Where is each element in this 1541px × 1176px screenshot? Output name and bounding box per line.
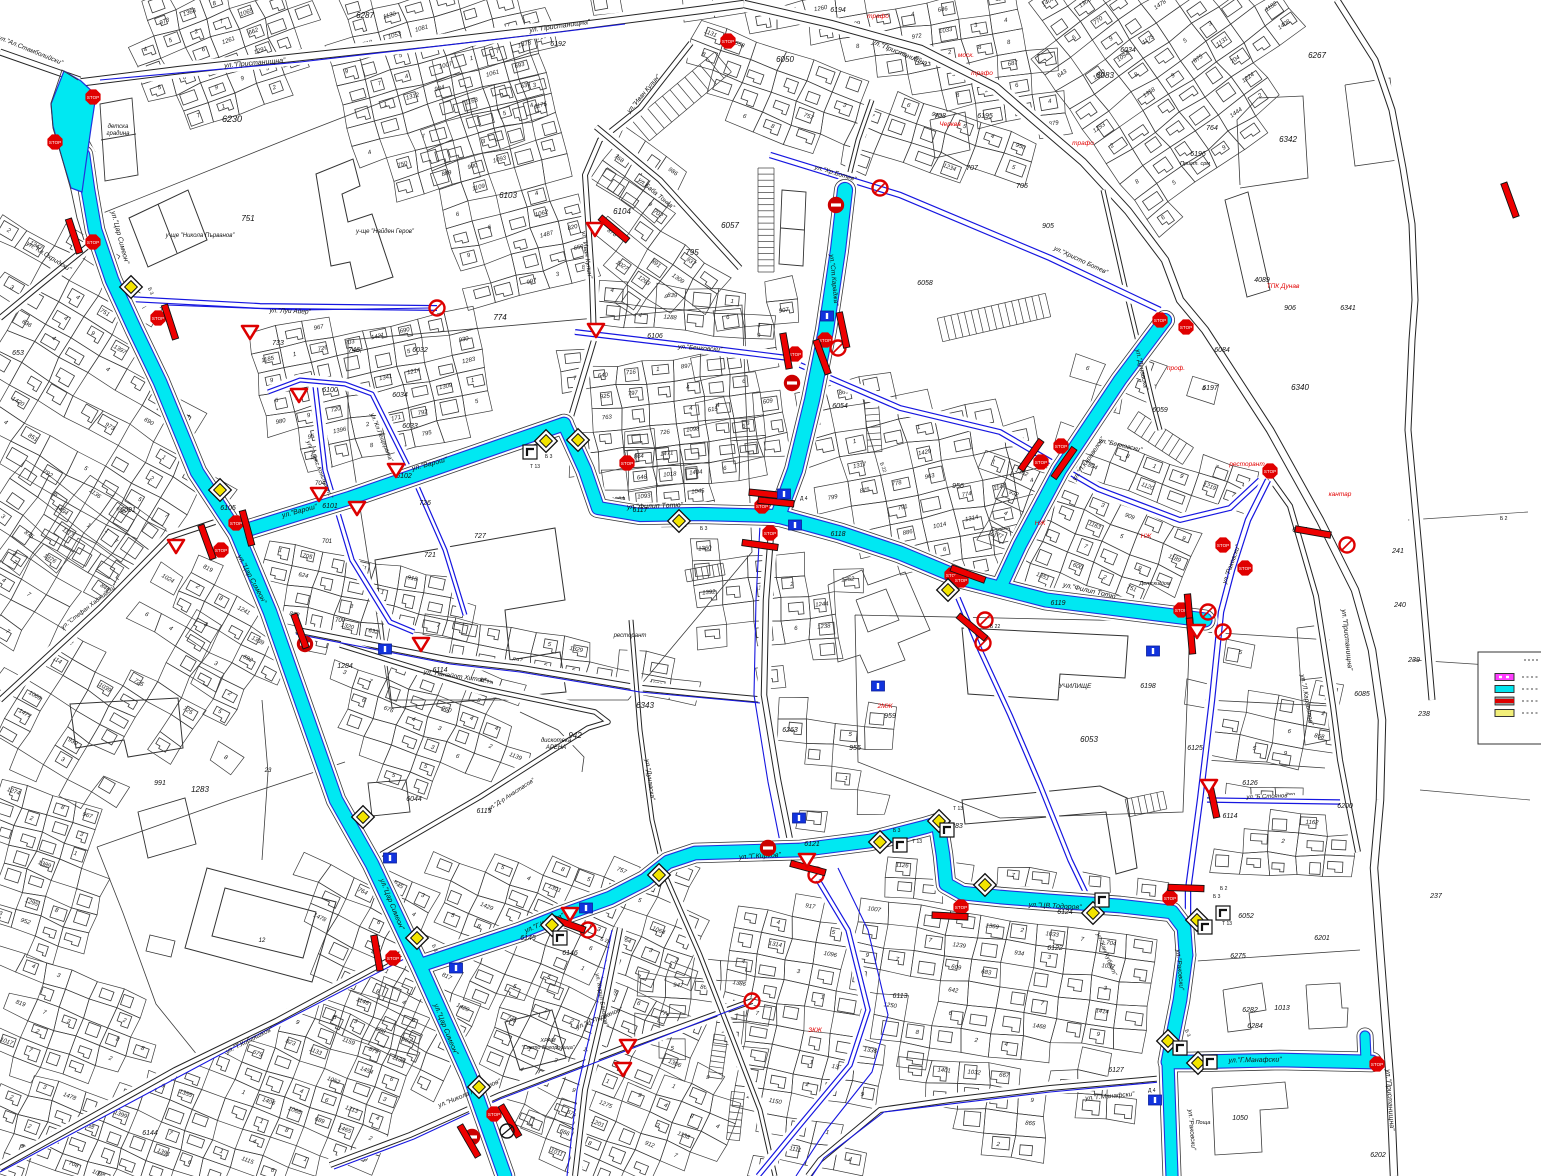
svg-text:991: 991: [154, 780, 166, 787]
svg-text:6044: 6044: [406, 796, 422, 803]
svg-text:1283: 1283: [191, 785, 209, 794]
svg-text:STOP: STOP: [955, 905, 967, 910]
svg-text:Б 3: Б 3: [545, 454, 553, 460]
svg-text:Д 4: Д 4: [800, 496, 808, 502]
svg-text:774: 774: [493, 313, 507, 322]
svg-text:763: 763: [602, 414, 613, 421]
svg-text:1050: 1050: [1232, 1115, 1248, 1122]
svg-text:6122: 6122: [1047, 945, 1063, 952]
svg-text:STOP: STOP: [621, 461, 633, 466]
svg-text:6101: 6101: [322, 503, 338, 510]
svg-text:ул.”Г.Манафски”: ул.”Г.Манафски”: [1227, 1057, 1282, 1065]
svg-text:6118: 6118: [830, 531, 845, 538]
svg-text:707: 707: [966, 165, 979, 172]
svg-text:6202: 6202: [1370, 1152, 1386, 1159]
svg-text:6085: 6085: [1354, 691, 1370, 698]
svg-text:1: 1: [656, 367, 660, 373]
svg-text:градина: градина: [107, 131, 131, 137]
svg-text:STOP: STOP: [230, 521, 242, 526]
svg-text:764: 764: [1206, 125, 1218, 132]
svg-text:905: 905: [1042, 223, 1054, 230]
svg-text:НЖ: НЖ: [1035, 520, 1047, 527]
svg-text:1288: 1288: [663, 314, 677, 321]
svg-text:640: 640: [598, 372, 609, 379]
svg-text:727: 727: [474, 533, 487, 540]
svg-text:751: 751: [241, 214, 254, 223]
svg-text:716: 716: [626, 369, 637, 376]
svg-text:6058: 6058: [917, 280, 933, 287]
svg-text:865: 865: [1025, 1121, 1036, 1128]
svg-text:1252: 1252: [841, 576, 855, 583]
svg-text:6144: 6144: [142, 1130, 158, 1137]
svg-text:6054: 6054: [832, 403, 848, 410]
svg-text:1244: 1244: [815, 601, 829, 608]
svg-text:STOP: STOP: [87, 240, 99, 245]
svg-text:ресторант: ресторант: [613, 633, 647, 639]
svg-text:646: 646: [637, 474, 648, 481]
svg-text:моск.: моск.: [958, 52, 974, 59]
svg-text:STOP: STOP: [152, 316, 164, 321]
svg-text:STOP: STOP: [1264, 469, 1276, 474]
svg-text:ХРАМ: ХРАМ: [539, 1038, 556, 1044]
svg-text:241: 241: [1391, 548, 1404, 555]
svg-text:956: 956: [952, 483, 964, 490]
svg-text:Т 13: Т 13: [953, 806, 963, 812]
svg-text:897: 897: [681, 363, 692, 370]
svg-text:6146: 6146: [562, 950, 578, 957]
svg-text:6275: 6275: [1230, 953, 1246, 960]
svg-text:STOP: STOP: [1164, 896, 1176, 901]
svg-text:Б 3: Б 3: [893, 828, 901, 834]
svg-text:925: 925: [600, 393, 611, 400]
svg-text:STOP: STOP: [1217, 543, 1229, 548]
svg-text:трафо: трафо: [867, 13, 889, 20]
svg-text:6124: 6124: [1057, 909, 1073, 916]
svg-text:6282: 6282: [1242, 1007, 1258, 1014]
svg-text:6196: 6196: [1190, 151, 1206, 158]
svg-text:6342: 6342: [1279, 135, 1297, 144]
svg-text:STOP: STOP: [1371, 1062, 1383, 1067]
svg-text:6121: 6121: [804, 841, 820, 848]
svg-text:6103: 6103: [499, 191, 517, 200]
svg-text:6104: 6104: [613, 207, 631, 216]
svg-text:239: 239: [1407, 657, 1420, 664]
svg-text:726: 726: [419, 500, 431, 507]
svg-text:НЖ: НЖ: [1141, 533, 1153, 540]
svg-text:705: 705: [1016, 183, 1028, 190]
svg-text:746,: 746,: [348, 347, 362, 354]
svg-text:1392: 1392: [702, 589, 716, 596]
svg-text:6197: 6197: [1202, 385, 1219, 392]
svg-text:6125: 6125: [1187, 745, 1203, 752]
svg-text:6059: 6059: [1152, 407, 1168, 414]
svg-text:Б 22: Б 22: [990, 624, 1000, 630]
svg-text:Т 13: Т 13: [530, 464, 540, 470]
svg-text:1401: 1401: [937, 1067, 951, 1074]
svg-text:6119: 6119: [1050, 600, 1065, 607]
svg-text:ТПК Дунав: ТПК Дунав: [1267, 283, 1300, 290]
svg-text:STOP: STOP: [87, 95, 99, 100]
svg-text:726: 726: [660, 429, 671, 436]
svg-text:6033: 6033: [402, 423, 418, 430]
svg-text:STOP: STOP: [955, 578, 967, 583]
svg-text:6201: 6201: [1314, 935, 1330, 942]
svg-text:701: 701: [322, 539, 332, 545]
svg-text:6117: 6117: [632, 507, 648, 514]
svg-text:733: 733: [272, 340, 284, 347]
svg-text:6050: 6050: [776, 55, 794, 64]
svg-text:6194: 6194: [830, 7, 846, 14]
svg-text:6287: 6287: [356, 11, 374, 20]
svg-text:Поща: Поща: [1196, 1120, 1211, 1126]
svg-text:STOP: STOP: [49, 140, 61, 145]
svg-text:6230: 6230: [222, 114, 242, 124]
svg-text:STOP: STOP: [1180, 325, 1192, 330]
svg-text:6200: 6200: [1337, 803, 1353, 810]
svg-text:6083: 6083: [1096, 71, 1114, 80]
svg-text:Прист. срм: Прист. срм: [1180, 161, 1210, 167]
svg-text:STOP: STOP: [819, 338, 831, 343]
svg-text:STOP: STOP: [764, 531, 776, 536]
svg-text:6145: 6145: [520, 935, 536, 942]
svg-text:23: 23: [264, 768, 272, 774]
svg-text:”Свето Богородица”: ”Свето Богородица”: [521, 1045, 575, 1051]
svg-text:12: 12: [259, 938, 266, 944]
svg-text:959: 959: [884, 713, 896, 720]
svg-text:у-ще ”Найден Геров”: у-ще ”Найден Геров”: [355, 228, 415, 235]
svg-text:1162: 1162: [1305, 820, 1319, 827]
svg-text:трафо: трафо: [971, 70, 993, 77]
svg-text:ресторант: ресторант: [1228, 461, 1265, 468]
svg-text:240: 240: [1393, 602, 1406, 609]
svg-text:942: 942: [568, 731, 582, 740]
svg-text:STOP: STOP: [1035, 460, 1047, 465]
svg-text:6114: 6114: [1222, 813, 1237, 820]
svg-text:STOP: STOP: [488, 1112, 500, 1117]
svg-text:1093: 1093: [637, 493, 651, 500]
svg-text:1126: 1126: [895, 862, 909, 869]
svg-text:Б 2: Б 2: [1500, 516, 1508, 522]
svg-text:864: 864: [634, 453, 645, 460]
svg-text:1284: 1284: [337, 663, 353, 670]
svg-text:Д 4: Д 4: [1148, 1088, 1156, 1094]
svg-text:721: 721: [424, 552, 436, 559]
svg-text:1: 1: [844, 776, 848, 782]
svg-text:6198: 6198: [1140, 683, 1156, 690]
svg-text:6106: 6106: [647, 333, 663, 340]
svg-text:1: 1: [757, 323, 761, 329]
svg-text:1360: 1360: [698, 545, 712, 552]
svg-text:1238: 1238: [817, 623, 831, 630]
svg-text:947: 947: [673, 983, 684, 990]
svg-text:1404: 1404: [689, 469, 703, 476]
svg-text:704: 704: [315, 481, 326, 487]
svg-text:УЧИЛИЩЕ: УЧИЛИЩЕ: [1058, 683, 1092, 690]
svg-text:795: 795: [685, 248, 699, 257]
svg-text:STOP: STOP: [1154, 318, 1166, 323]
svg-text:6114: 6114: [432, 667, 447, 674]
svg-text:6084: 6084: [1214, 347, 1230, 354]
svg-text:237: 237: [1429, 893, 1443, 900]
svg-text:708: 708: [934, 113, 946, 120]
svg-text:ЗКЖ: ЗКЖ: [808, 1027, 823, 1034]
svg-text:6126: 6126: [1242, 780, 1258, 787]
svg-text:ул.”Луи Айер”: ул.”Луи Айер”: [268, 306, 311, 316]
svg-text:6034: 6034: [392, 392, 408, 399]
svg-text:АРЕНА: АРЕНА: [545, 745, 566, 751]
svg-text:STOP: STOP: [1055, 444, 1067, 449]
svg-text:1018: 1018: [663, 471, 677, 478]
svg-text:6284: 6284: [1247, 1023, 1263, 1030]
svg-text:6115: 6115: [476, 808, 491, 815]
svg-text:6192: 6192: [550, 41, 566, 48]
svg-text:6091: 6091: [120, 507, 136, 514]
svg-text:проф.: проф.: [1167, 365, 1185, 372]
svg-text:238: 238: [1417, 711, 1430, 718]
svg-text:6195: 6195: [977, 113, 993, 120]
svg-text:Т 13: Т 13: [912, 839, 922, 845]
svg-text:6340: 6340: [1291, 383, 1309, 392]
svg-text:STOP: STOP: [387, 956, 399, 961]
svg-text:STOP: STOP: [1239, 566, 1251, 571]
svg-text:кантар: кантар: [1329, 491, 1352, 498]
svg-text:6267: 6267: [1308, 51, 1326, 60]
svg-text:667: 667: [999, 1073, 1010, 1080]
svg-text:6113: 6113: [892, 993, 907, 1000]
svg-text:6053: 6053: [1080, 735, 1098, 744]
svg-text:1032: 1032: [967, 1069, 981, 1076]
svg-text:1013: 1013: [1274, 1005, 1290, 1012]
svg-text:1: 1: [730, 299, 734, 305]
svg-text:6057: 6057: [721, 221, 739, 230]
svg-text:797: 797: [628, 390, 639, 397]
svg-text:STOP: STOP: [789, 352, 801, 357]
svg-text:6052: 6052: [1238, 913, 1254, 920]
svg-text:трафо: трафо: [1072, 140, 1094, 147]
svg-text:6263: 6263: [782, 727, 798, 734]
svg-text:6034: 6034: [1120, 47, 1136, 54]
svg-text:STOP: STOP: [722, 39, 734, 44]
svg-text:6105: 6105: [220, 505, 236, 512]
svg-text:2МЖ: 2МЖ: [877, 703, 894, 710]
svg-text:653: 653: [12, 350, 24, 357]
svg-text:6341: 6341: [1340, 305, 1356, 312]
svg-text:Б 3: Б 3: [700, 526, 708, 532]
svg-text:955: 955: [849, 745, 861, 752]
svg-text:STOP: STOP: [215, 548, 227, 553]
svg-text:6032: 6032: [412, 347, 428, 354]
svg-text:839: 839: [667, 293, 678, 300]
svg-text:дискотека: дискотека: [541, 738, 572, 744]
svg-text:6127: 6127: [1108, 1067, 1125, 1074]
svg-text:700: 700: [335, 618, 346, 624]
svg-text:Детски дом: Детски дом: [1138, 581, 1170, 587]
svg-text:6100: 6100: [322, 387, 338, 394]
svg-text:Б 2: Б 2: [1220, 886, 1228, 892]
svg-text:Черква: Черква: [939, 121, 961, 128]
svg-text:детска: детска: [108, 124, 129, 130]
svg-text:у-ще ”Никола Първанов”: у-ще ”Никола Първанов”: [165, 233, 236, 239]
svg-text:1045: 1045: [691, 488, 705, 495]
svg-text:Б 3: Б 3: [1213, 894, 1221, 900]
svg-text:Т 13: Т 13: [1222, 921, 1232, 927]
svg-text:906: 906: [1284, 305, 1296, 312]
svg-text:6343: 6343: [636, 701, 654, 710]
